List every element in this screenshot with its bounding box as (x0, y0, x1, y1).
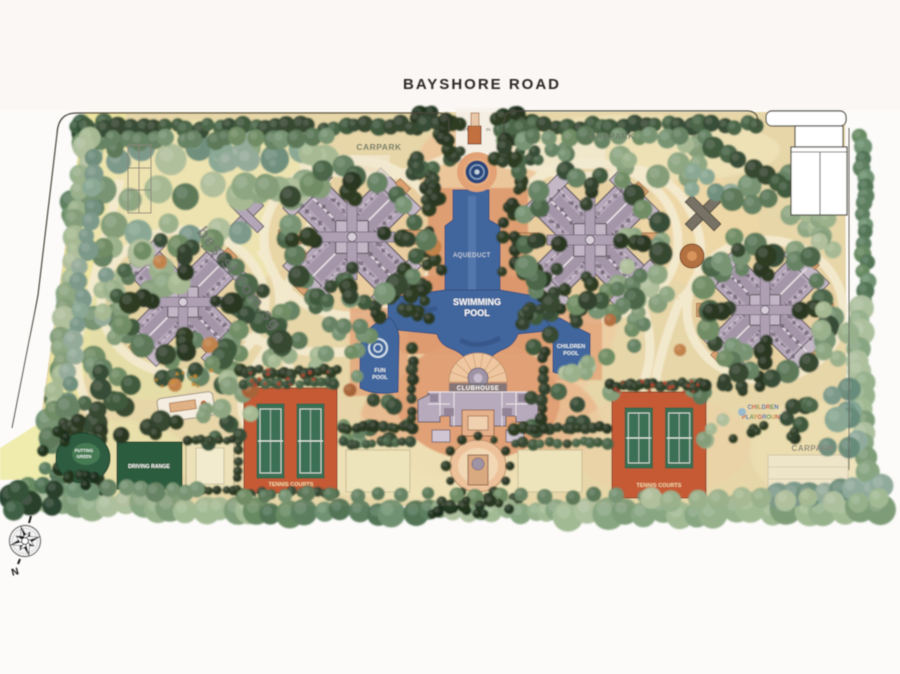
svg-text:CARPARK: CARPARK (589, 131, 635, 141)
svg-text:GREEN: GREEN (77, 454, 92, 459)
svg-text:PUTTING: PUTTING (75, 448, 93, 453)
svg-text:CARPARK: CARPARK (792, 444, 835, 453)
svg-text:BAYSHORE ROAD: BAYSHORE ROAD (403, 76, 561, 93)
svg-text:CARPARK: CARPARK (356, 142, 402, 152)
